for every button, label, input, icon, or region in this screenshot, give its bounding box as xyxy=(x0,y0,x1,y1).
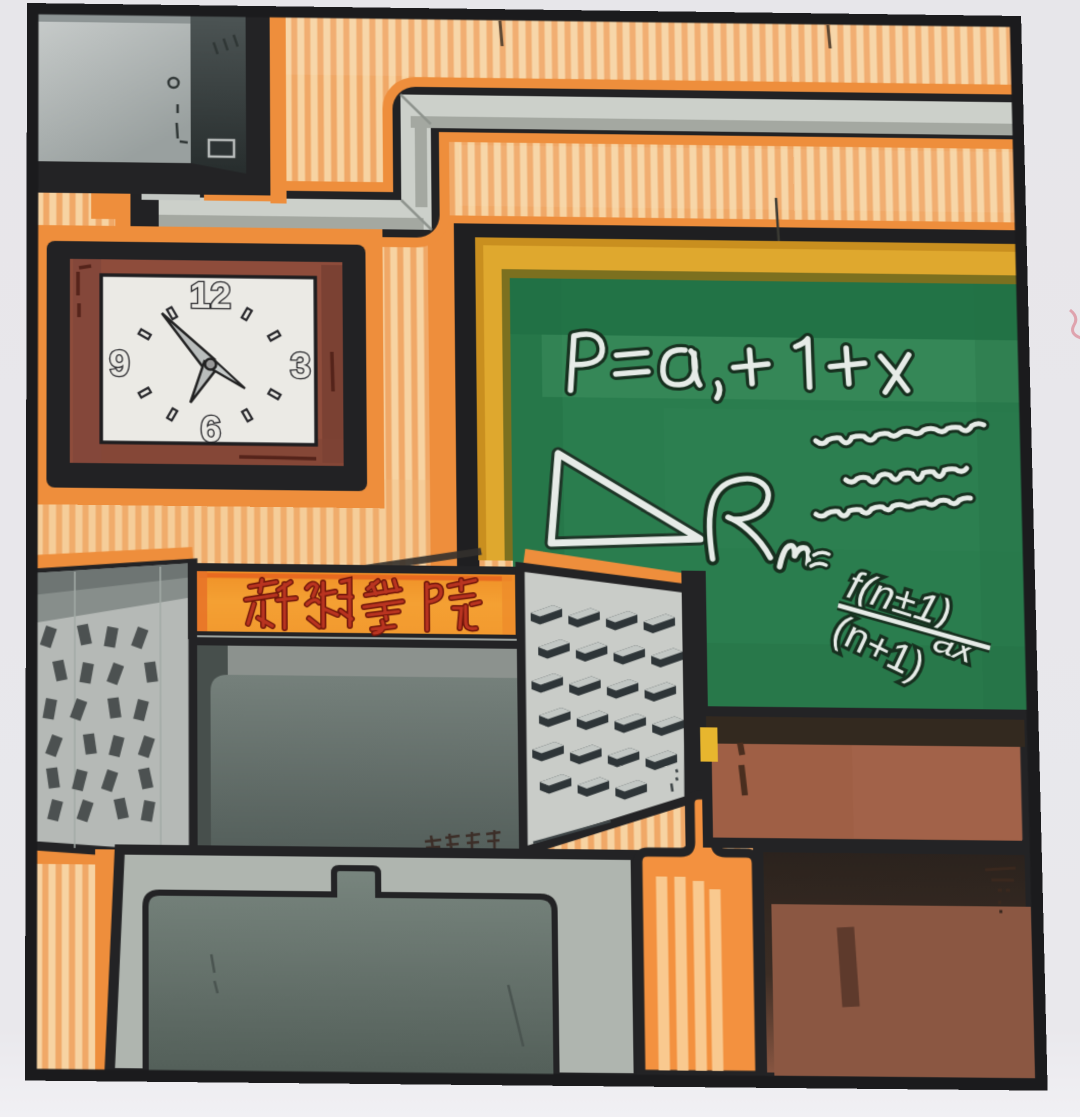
svg-text:6: 6 xyxy=(200,408,221,449)
svg-text:3: 3 xyxy=(290,345,311,386)
svg-text:9: 9 xyxy=(109,343,130,384)
svg-text:12: 12 xyxy=(190,275,232,316)
